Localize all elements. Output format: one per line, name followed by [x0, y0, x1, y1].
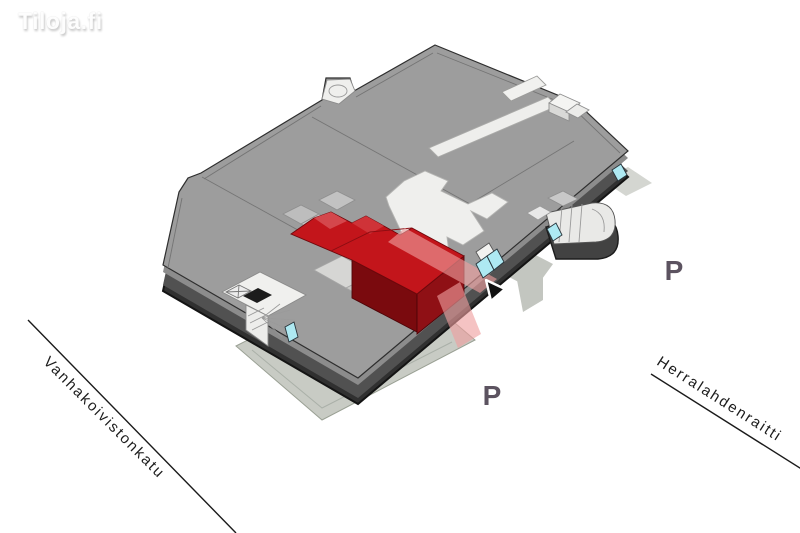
- site-plan-canvas: Vanhakoivistonkatu Herralahdenraitti: [0, 0, 800, 533]
- parking-marker-east: P: [665, 255, 684, 286]
- parking-marker-south: P: [483, 380, 502, 411]
- street-line-left: [28, 320, 236, 533]
- street-label-right: Herralahdenraitti: [654, 353, 785, 445]
- street-line-right: [651, 374, 800, 470]
- street-label-left: Vanhakoivistonkatu: [40, 353, 169, 482]
- logo: Tiloja.fi: [18, 8, 103, 35]
- isometric-floor-plan: Vanhakoivistonkatu Herralahdenraitti: [0, 0, 800, 533]
